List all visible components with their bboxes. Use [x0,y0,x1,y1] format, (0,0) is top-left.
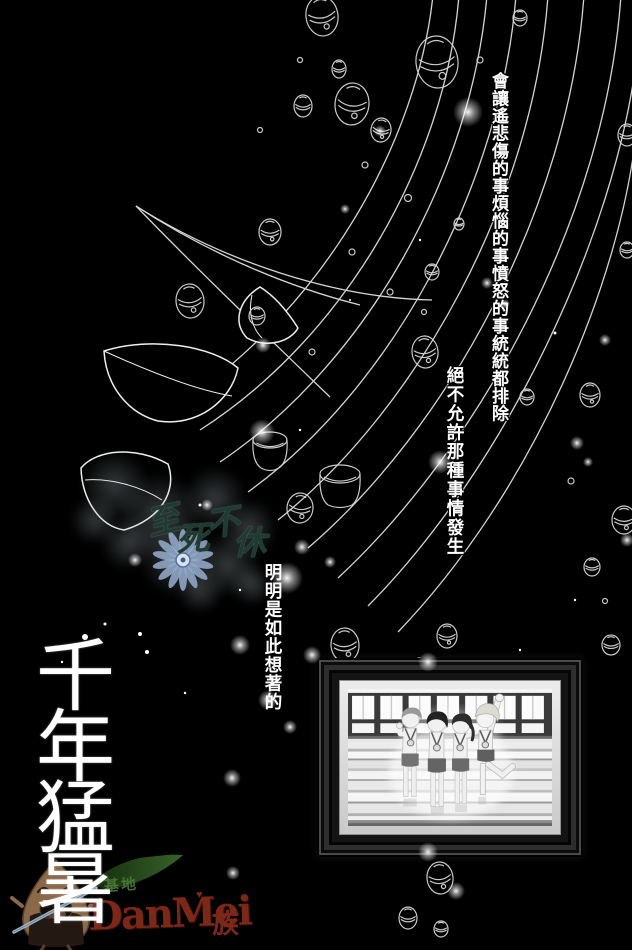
site-watermark-suffix: 族 [212,902,239,941]
photo-scene [348,689,552,826]
dialogue-column-2: 絕不允許那種事情發生 [443,366,468,556]
dialogue-column-3: 明明是如此想著的 [261,563,286,711]
photo-mat [339,680,561,835]
scanlation-char-4: 休 [233,516,266,564]
pale-blob [70,495,120,545]
page-title: 千年猛暑 [27,634,106,918]
dialogue-column-1: 會讓遙悲傷的事煩惱的事憤怒的事統統都排除 [486,72,511,422]
photo-swim-kids [348,689,552,826]
heart-icon: ♥ [196,889,203,901]
manga-page: 至 死 不 休 會讓遙悲傷的事煩惱的事憤怒的事統統都排除 絕不允許那種事情發生 … [0,0,632,950]
photo-frame [317,658,583,857]
